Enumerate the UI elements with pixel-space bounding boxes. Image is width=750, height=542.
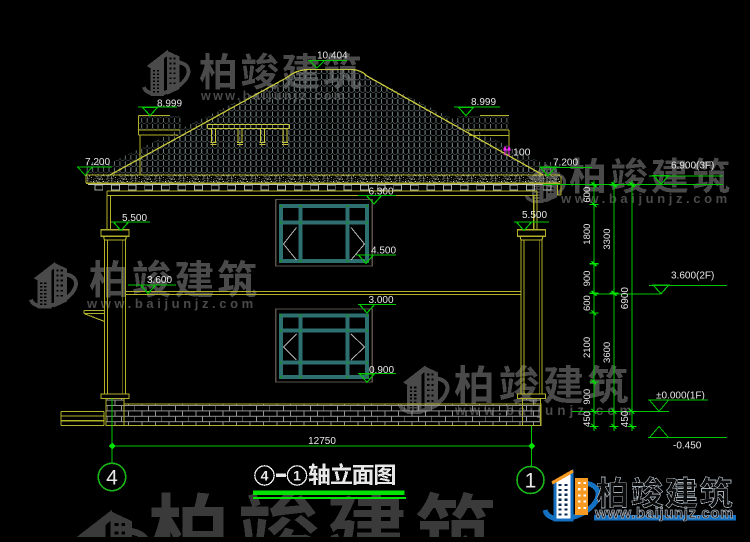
svg-text:5.500: 5.500 — [522, 210, 547, 221]
svg-text:12750: 12750 — [308, 436, 336, 447]
svg-text:1: 1 — [293, 468, 301, 484]
svg-text:6900: 6900 — [620, 287, 631, 310]
svg-text:-0.450: -0.450 — [673, 441, 702, 452]
svg-text:4: 4 — [261, 468, 269, 484]
svg-text:8.999: 8.999 — [157, 99, 182, 110]
svg-text:900: 900 — [582, 271, 593, 287]
svg-text:3.600(2F): 3.600(2F) — [671, 271, 714, 282]
svg-text:2100: 2100 — [582, 337, 593, 358]
svg-text:450: 450 — [582, 411, 593, 427]
svg-text:3.600: 3.600 — [147, 275, 172, 286]
svg-text:600: 600 — [582, 187, 593, 203]
svg-text:8.999: 8.999 — [471, 97, 496, 108]
svg-text:450: 450 — [620, 410, 631, 427]
svg-text:10.404: 10.404 — [317, 51, 348, 62]
svg-text:4: 4 — [106, 467, 118, 490]
svg-text:www.baijunjz.com: www.baijunjz.com — [86, 296, 257, 311]
svg-text:3600: 3600 — [602, 342, 613, 363]
svg-text:100: 100 — [513, 147, 531, 159]
svg-text:900: 900 — [582, 389, 593, 405]
svg-text:600: 600 — [582, 295, 593, 311]
svg-text:3300: 3300 — [602, 228, 613, 249]
svg-text:www.baijunjz.com: www.baijunjz.com — [594, 505, 734, 522]
svg-text:6.900(3F): 6.900(3F) — [671, 161, 714, 172]
svg-text:0.900: 0.900 — [369, 365, 394, 376]
svg-text:1800: 1800 — [582, 224, 593, 245]
svg-text:1: 1 — [525, 470, 537, 493]
